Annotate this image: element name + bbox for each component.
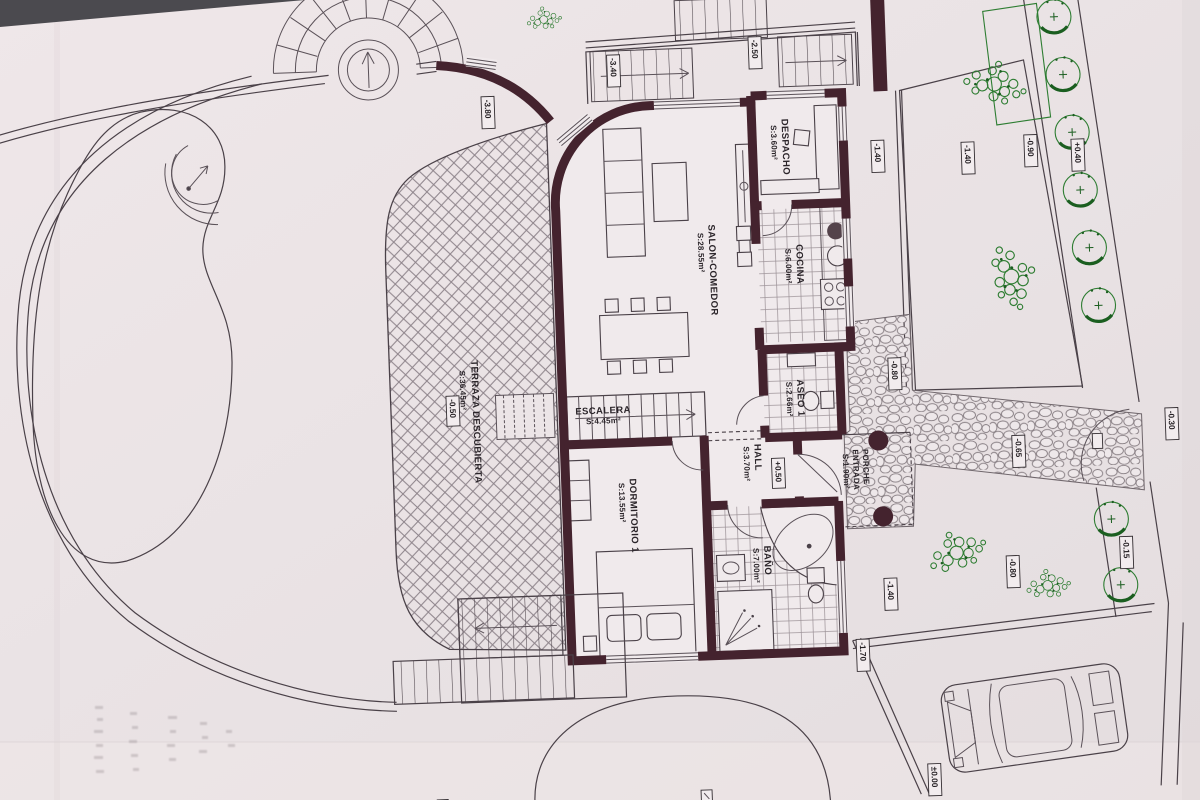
svg-text:S:2.66m²: S:2.66m² xyxy=(784,382,794,417)
level-marker: -1.70 xyxy=(856,639,870,671)
paper-crease-band xyxy=(0,742,1200,800)
svg-text:S:7.00m²: S:7.00m² xyxy=(751,548,761,583)
level-marker: -2.50 xyxy=(748,37,762,69)
svg-text:+0.40: +0.40 xyxy=(1073,142,1084,164)
shower xyxy=(718,590,774,652)
nightstand xyxy=(583,636,597,651)
level-marker: -1.40 xyxy=(871,140,885,172)
svg-text:-0.80: -0.80 xyxy=(1008,558,1019,578)
svg-text:HALL: HALL xyxy=(751,444,763,471)
stool xyxy=(737,252,752,267)
svg-text:-1.40: -1.40 xyxy=(963,145,974,165)
svg-text:-0.50: -0.50 xyxy=(448,399,459,419)
svg-text:±0.00: ±0.00 xyxy=(929,766,940,787)
svg-text:-0.65: -0.65 xyxy=(1013,438,1024,458)
level-marker: -0.50 xyxy=(446,396,460,426)
gate-marker xyxy=(1092,433,1103,448)
stair-flight-upper xyxy=(674,0,767,41)
svg-text:-0.30: -0.30 xyxy=(1166,411,1177,431)
svg-text:-0.90: -0.90 xyxy=(1025,138,1036,158)
svg-text:-1.70: -1.70 xyxy=(858,642,869,662)
window xyxy=(844,286,855,326)
svg-text:-0.15: -0.15 xyxy=(1121,539,1132,559)
pillow xyxy=(647,613,682,640)
window xyxy=(841,218,852,258)
svg-text:+0.50: +0.50 xyxy=(773,461,784,483)
entry-nook xyxy=(797,435,844,503)
window xyxy=(837,106,848,140)
svg-text:S:13.55m²: S:13.55m² xyxy=(617,483,627,523)
chair xyxy=(793,129,809,145)
svg-text:S:1.90m²: S:1.90m² xyxy=(841,454,851,489)
toilet xyxy=(808,585,824,604)
svg-text:ASEO 1: ASEO 1 xyxy=(794,379,806,417)
svg-text:-1.40: -1.40 xyxy=(886,581,897,601)
floor-plan-photo: DESPACHO S:3.60m² SALON-COMEDOR S:28.55m… xyxy=(0,0,1200,800)
paper-edge-shadow xyxy=(1182,0,1200,800)
coffee-table xyxy=(652,162,688,221)
desk xyxy=(814,105,839,190)
svg-text:BAÑO: BAÑO xyxy=(761,545,773,575)
level-marker: ±0.00 xyxy=(928,763,942,795)
level-marker: -1.40 xyxy=(961,142,975,174)
svg-text:S:4.45m²: S:4.45m² xyxy=(586,416,621,426)
label-cocina: COCINA S:6.00m² xyxy=(783,244,805,285)
washbasin xyxy=(787,353,815,367)
svg-text:S:28.55m²: S:28.55m² xyxy=(696,233,706,273)
svg-text:-1.40: -1.40 xyxy=(872,143,883,163)
stool xyxy=(736,226,751,241)
svg-text:ENTRADA: ENTRADA xyxy=(851,449,861,490)
dining-table xyxy=(600,312,690,359)
vanity xyxy=(716,554,745,581)
label-aseo: ASEO 1 S:2.66m² xyxy=(784,379,806,417)
credenza xyxy=(761,179,819,195)
svg-text:S:3.60m²: S:3.60m² xyxy=(769,125,779,160)
svg-text:S:3.70m²: S:3.70m² xyxy=(741,446,751,481)
level-marker: -0.80 xyxy=(1006,555,1020,587)
level-marker: -0.80 xyxy=(888,358,902,390)
level-marker: -0.65 xyxy=(1012,435,1026,467)
svg-text:DESPACHO: DESPACHO xyxy=(778,119,791,176)
svg-text:-0.80: -0.80 xyxy=(889,361,900,381)
svg-text:PORCHE: PORCHE xyxy=(861,449,871,485)
window xyxy=(766,88,824,100)
level-marker: +0.50 xyxy=(771,458,785,488)
terraza-grille xyxy=(495,393,555,439)
svg-text:-3.40: -3.40 xyxy=(608,58,619,78)
label-porche: PORCHE ENTRADA S:1.90m² xyxy=(841,449,871,491)
level-marker: -1.40 xyxy=(884,578,898,610)
svg-text:-2.50: -2.50 xyxy=(750,40,761,60)
svg-text:S:6.00m²: S:6.00m² xyxy=(783,249,793,284)
level-marker: -3.40 xyxy=(607,55,621,87)
level-marker: -0.30 xyxy=(1165,408,1179,440)
floor-plan-drawing: DESPACHO S:3.60m² SALON-COMEDOR S:28.55m… xyxy=(0,0,1200,800)
level-marker: -0.15 xyxy=(1120,536,1134,568)
level-marker: -0.90 xyxy=(1024,134,1038,166)
level-marker: +0.40 xyxy=(1071,139,1085,171)
svg-text:COCINA: COCINA xyxy=(793,244,805,284)
level-marker: -3.80 xyxy=(481,96,495,128)
svg-text:-3.80: -3.80 xyxy=(483,99,494,119)
